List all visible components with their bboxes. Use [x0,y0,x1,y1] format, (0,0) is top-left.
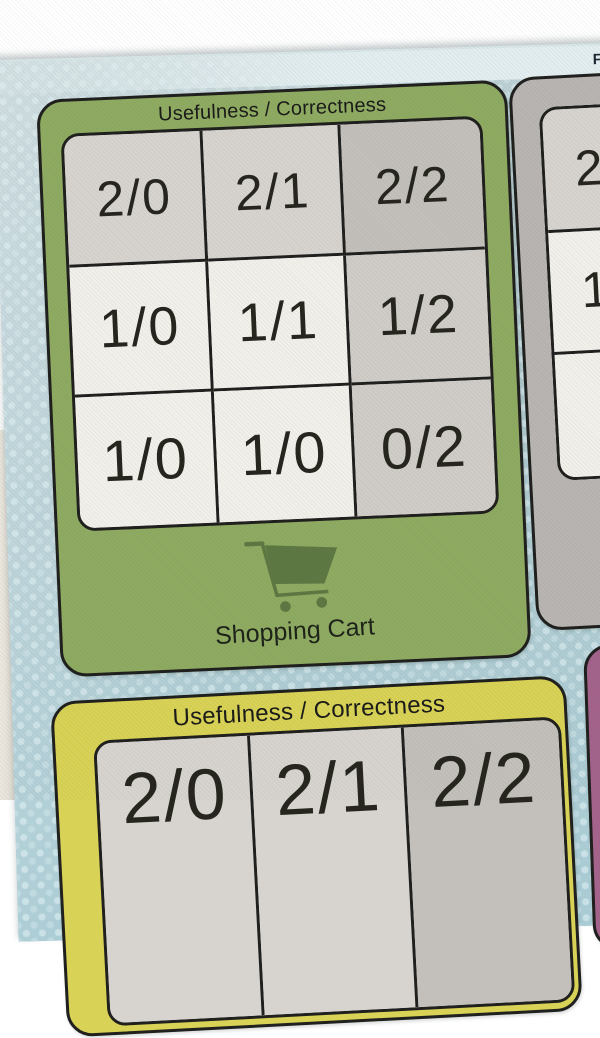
grid-cell: 2/2 [341,119,485,256]
grid-cell: 1/0 [214,386,358,523]
grid-cell: 2/ [542,98,600,233]
photo-of-game-sheet: { "header": { "text": "First" }, "shoppi… [0,0,600,800]
grid-cell: 0/2 [352,380,496,517]
grid-cell [555,343,600,478]
page-header-text: First [592,50,600,68]
grid-cell: 2/1 [250,728,418,1016]
shopping-cart-card: Usefulness / Correctness 2/0 2/1 2/2 1/0… [36,79,532,677]
grid-cell: 2/0 [64,131,208,268]
grid-cell: 2/2 [404,719,572,1007]
grid-cell: 2/0 [96,736,264,1024]
score-grid: 2/0 2/1 2/2 1/0 1/1 1/2 1/0 1/0 0/2 [61,116,500,532]
page-header-band: First [0,41,600,94]
bottom-partial-card: Usefulness / Correctness 2/0 2/1 2/2 [50,675,583,1038]
grid-cell: 1/0 [69,261,213,398]
grid-cell: 1/2 [346,249,490,386]
grid-cell: 1/1 [208,255,352,392]
grid-cell: 1/0 [75,392,219,529]
shopping-cart-icon [205,531,380,618]
grid-cell: 1 [548,221,600,356]
score-grid-partial: 2/0 2/1 2/2 [93,716,575,1026]
grid-cell: 2/1 [202,125,346,262]
score-grid-partial: 2/ 1 [539,95,600,481]
